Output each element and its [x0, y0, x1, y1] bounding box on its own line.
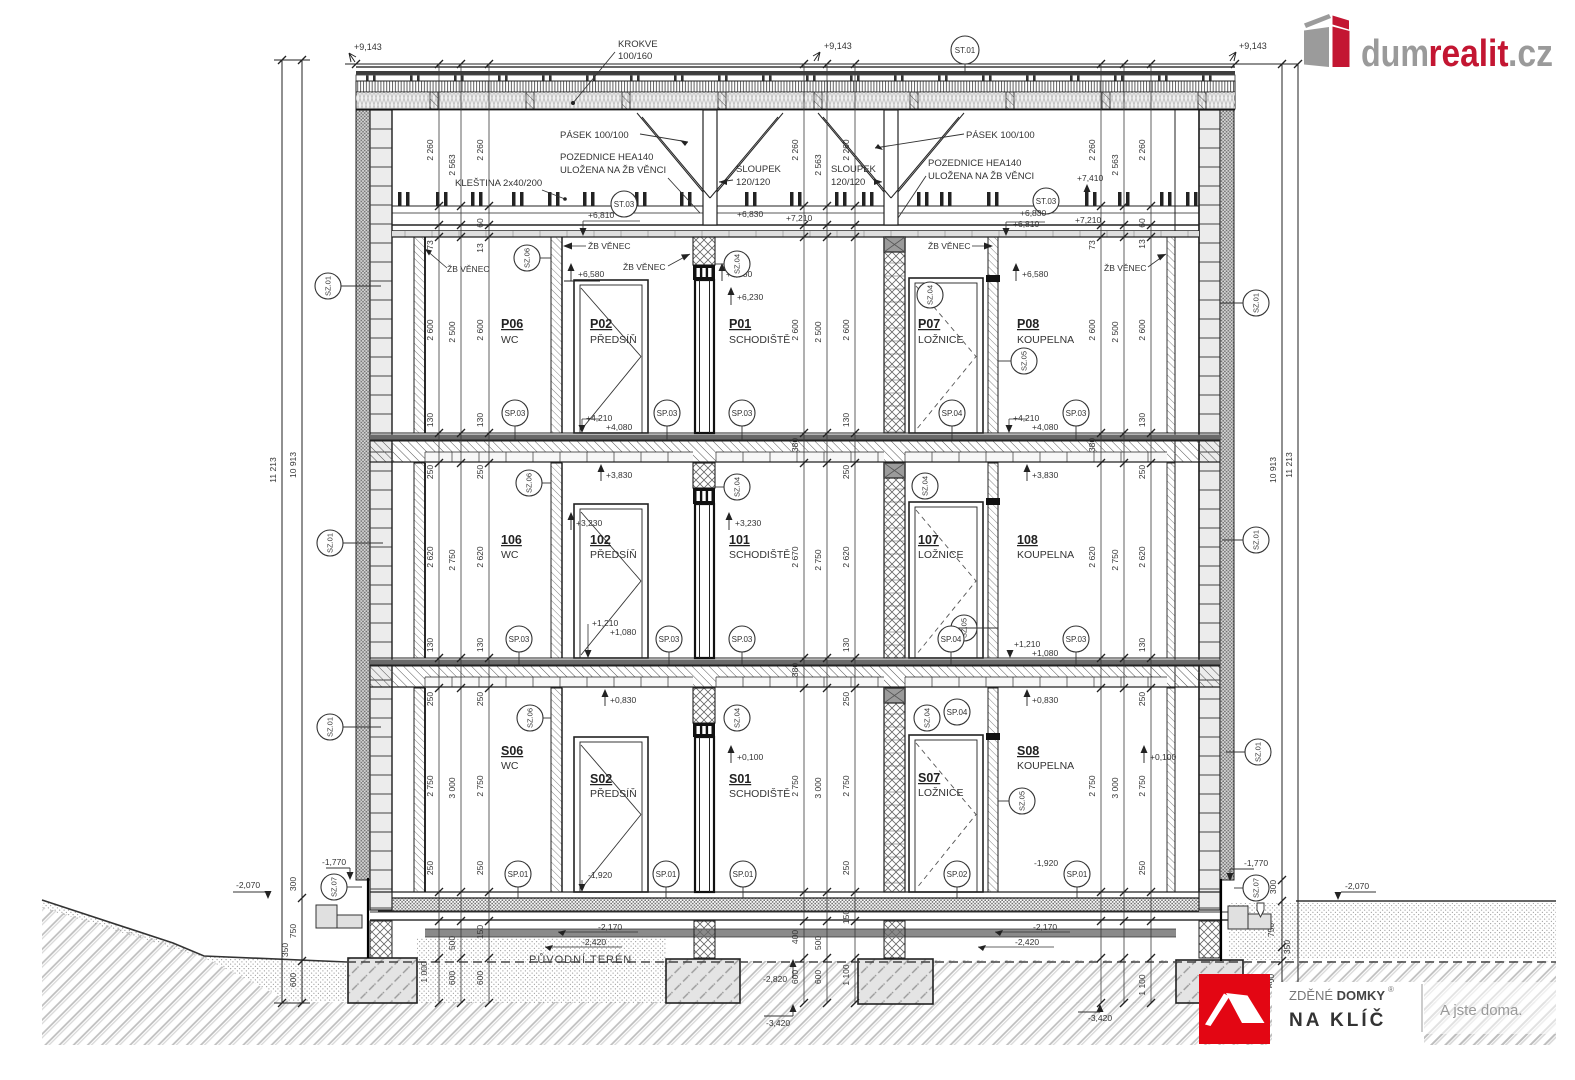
svg-text:+3,230: +3,230	[735, 518, 762, 528]
svg-text:600: 600	[447, 971, 457, 985]
svg-text:ŽB VĚNEC: ŽB VĚNEC	[447, 264, 490, 274]
svg-text:A jste doma.: A jste doma.	[1440, 1002, 1523, 1019]
svg-text:+7,210: +7,210	[786, 213, 813, 223]
svg-text:150: 150	[475, 925, 485, 939]
svg-text:+6,580: +6,580	[1022, 269, 1049, 279]
svg-text:LOŽNICE: LOŽNICE	[918, 548, 964, 561]
svg-text:2 600: 2 600	[1087, 319, 1097, 341]
svg-text:3 000: 3 000	[1110, 777, 1120, 799]
svg-text:600: 600	[288, 973, 298, 987]
svg-text:-2,820: -2,820	[763, 974, 787, 984]
svg-text:60: 60	[1137, 218, 1147, 228]
svg-text:250: 250	[841, 861, 851, 875]
svg-text:100/160: 100/160	[618, 51, 652, 62]
svg-text:P08: P08	[1017, 317, 1039, 331]
svg-text:SZ.01: SZ.01	[1252, 530, 1261, 550]
svg-text:SLOUPEK: SLOUPEK	[736, 164, 782, 175]
svg-text:dum: dum	[1361, 33, 1429, 75]
svg-text:KOUPELNA: KOUPELNA	[1017, 760, 1074, 772]
svg-text:380: 380	[1087, 438, 1097, 452]
svg-text:130: 130	[841, 638, 851, 652]
svg-text:2 670: 2 670	[790, 546, 800, 568]
svg-text:2 750: 2 750	[1110, 549, 1120, 571]
svg-text:2 563: 2 563	[1110, 154, 1120, 176]
svg-text:350: 350	[1282, 940, 1292, 954]
svg-text:SZ.01: SZ.01	[1254, 742, 1263, 762]
svg-text:350: 350	[280, 943, 290, 957]
svg-text:ULOŽENA NA ŽB VĚNCI: ULOŽENA NA ŽB VĚNCI	[560, 165, 666, 176]
svg-text:2 750: 2 750	[790, 775, 800, 797]
svg-text:ZDĚNÉ DOMKY: ZDĚNÉ DOMKY	[1289, 988, 1385, 1003]
svg-text:+6,230: +6,230	[737, 292, 764, 302]
svg-text:.cz: .cz	[1508, 33, 1553, 75]
svg-text:P01: P01	[729, 317, 751, 331]
svg-text:101: 101	[729, 533, 750, 547]
svg-text:2 750: 2 750	[1087, 775, 1097, 797]
svg-text:-2,070: -2,070	[1345, 881, 1369, 891]
svg-text:KLEŠTINA 2x40/200: KLEŠTINA 2x40/200	[455, 178, 542, 189]
svg-text:130: 130	[425, 413, 435, 427]
svg-text:ST.03: ST.03	[614, 200, 635, 209]
svg-text:SZ.04: SZ.04	[733, 708, 742, 728]
svg-text:2 600: 2 600	[475, 319, 485, 341]
svg-text:P02: P02	[590, 317, 612, 331]
svg-text:PŮVODNÍ TERÉN: PŮVODNÍ TERÉN	[529, 953, 632, 966]
svg-text:2 600: 2 600	[425, 319, 435, 341]
svg-text:2 260: 2 260	[841, 139, 851, 161]
svg-text:108: 108	[1017, 533, 1038, 547]
svg-text:130: 130	[841, 413, 851, 427]
svg-text:ŽB VĚNEC: ŽB VĚNEC	[588, 241, 631, 251]
svg-text:realit: realit	[1429, 33, 1509, 75]
svg-text:-1,920: -1,920	[588, 870, 612, 880]
svg-text:107: 107	[918, 533, 939, 547]
svg-text:SP.01: SP.01	[1067, 870, 1088, 879]
svg-text:SZ.06: SZ.06	[523, 248, 532, 268]
svg-text:2 620: 2 620	[1137, 546, 1147, 568]
svg-text:250: 250	[475, 465, 485, 479]
svg-text:PÁSEK 100/100: PÁSEK 100/100	[966, 130, 1035, 141]
svg-text:250: 250	[841, 465, 851, 479]
svg-text:SP.03: SP.03	[657, 409, 678, 418]
svg-text:130: 130	[1137, 638, 1147, 652]
svg-text:-2,170: -2,170	[598, 922, 622, 932]
svg-text:2 600: 2 600	[841, 319, 851, 341]
svg-text:+6,810: +6,810	[1013, 219, 1040, 229]
svg-text:WC: WC	[501, 549, 519, 561]
svg-text:-2,070: -2,070	[236, 880, 260, 890]
svg-text:SP.03: SP.03	[1066, 409, 1087, 418]
svg-text:-1,770: -1,770	[322, 857, 346, 867]
svg-text:600: 600	[475, 971, 485, 985]
svg-text:SZ.07: SZ.07	[1252, 878, 1261, 898]
svg-text:2 260: 2 260	[475, 139, 485, 161]
svg-text:ŽB VĚNEC: ŽB VĚNEC	[1104, 263, 1147, 273]
svg-text:1 000: 1 000	[419, 961, 429, 983]
svg-text:250: 250	[425, 861, 435, 875]
svg-text:+0,100: +0,100	[1150, 752, 1177, 762]
svg-text:-2,420: -2,420	[1015, 937, 1039, 947]
svg-text:600: 600	[813, 970, 823, 984]
svg-text:-1,920: -1,920	[1034, 858, 1058, 868]
svg-text:250: 250	[475, 861, 485, 875]
svg-text:+3,830: +3,830	[1032, 470, 1059, 480]
svg-text:-2,170: -2,170	[1033, 922, 1057, 932]
svg-text:SP.01: SP.01	[733, 870, 754, 879]
svg-text:SP.03: SP.03	[1066, 635, 1087, 644]
svg-text:SP.01: SP.01	[656, 870, 677, 879]
svg-text:73: 73	[1087, 240, 1097, 250]
svg-text:SP.04: SP.04	[941, 635, 962, 644]
svg-text:+6,830: +6,830	[737, 209, 764, 219]
svg-text:2 620: 2 620	[841, 546, 851, 568]
svg-text:SP.03: SP.03	[509, 635, 530, 644]
svg-text:ŽB VĚNEC: ŽB VĚNEC	[928, 241, 971, 251]
svg-text:SZ.04: SZ.04	[733, 477, 742, 497]
svg-text:3 000: 3 000	[813, 777, 823, 799]
svg-text:73: 73	[425, 240, 435, 250]
svg-text:+6,830: +6,830	[1020, 208, 1047, 218]
svg-text:SZ.01: SZ.01	[324, 276, 333, 296]
svg-text:PÁSEK 100/100: PÁSEK 100/100	[560, 130, 629, 141]
svg-text:S07: S07	[918, 771, 940, 785]
svg-text:+7,210: +7,210	[1075, 215, 1102, 225]
svg-text:ŽB VĚNEC: ŽB VĚNEC	[623, 262, 666, 272]
svg-text:2 260: 2 260	[1137, 139, 1147, 161]
svg-text:10 913: 10 913	[1268, 457, 1278, 483]
svg-text:250: 250	[841, 692, 851, 706]
svg-text:ULOŽENA NA ŽB VĚNCI: ULOŽENA NA ŽB VĚNCI	[928, 171, 1034, 182]
svg-text:130: 130	[475, 638, 485, 652]
svg-text:13: 13	[475, 243, 485, 253]
svg-text:600: 600	[790, 970, 800, 984]
svg-text:+4,080: +4,080	[606, 422, 633, 432]
svg-text:2 500: 2 500	[813, 321, 823, 343]
svg-text:2 600: 2 600	[790, 319, 800, 341]
svg-text:PŘEDSÍŇ: PŘEDSÍŇ	[590, 333, 637, 346]
svg-text:130: 130	[475, 413, 485, 427]
svg-text:P07: P07	[918, 317, 940, 331]
svg-text:120/120: 120/120	[736, 177, 770, 188]
svg-text:2 750: 2 750	[475, 775, 485, 797]
svg-text:SP.03: SP.03	[659, 635, 680, 644]
svg-text:2 620: 2 620	[475, 546, 485, 568]
svg-text:250: 250	[425, 465, 435, 479]
svg-text:2 260: 2 260	[1087, 139, 1097, 161]
svg-text:+3,230: +3,230	[576, 518, 603, 528]
svg-text:SZ.04: SZ.04	[923, 708, 932, 728]
svg-text:SZ.04: SZ.04	[921, 476, 930, 496]
svg-text:2 750: 2 750	[425, 775, 435, 797]
svg-text:250: 250	[1137, 692, 1147, 706]
svg-text:500: 500	[813, 936, 823, 950]
svg-text:SZ.01: SZ.01	[326, 533, 335, 553]
svg-text:ST.01: ST.01	[955, 46, 976, 55]
svg-text:+9,143: +9,143	[1239, 41, 1267, 51]
svg-text:2 563: 2 563	[447, 154, 457, 176]
svg-text:2 500: 2 500	[1110, 321, 1120, 343]
svg-text:250: 250	[475, 692, 485, 706]
svg-text:2 750: 2 750	[447, 549, 457, 571]
svg-text:SZ.01: SZ.01	[1252, 293, 1261, 313]
svg-text:SP.02: SP.02	[947, 870, 968, 879]
svg-text:SCHODIŠTĚ: SCHODIŠTĚ	[729, 548, 790, 561]
svg-text:+0,830: +0,830	[610, 695, 637, 705]
svg-text:380: 380	[790, 438, 800, 452]
svg-text:250: 250	[1137, 465, 1147, 479]
svg-text:-3,420: -3,420	[1088, 1013, 1112, 1023]
svg-text:120/120: 120/120	[831, 177, 865, 188]
svg-text:102: 102	[590, 533, 611, 547]
svg-text:ST.03: ST.03	[1036, 197, 1057, 206]
svg-text:60: 60	[475, 218, 485, 228]
svg-text:KOUPELNA: KOUPELNA	[1017, 549, 1074, 561]
svg-text:2 500: 2 500	[447, 321, 457, 343]
svg-text:130: 130	[1137, 413, 1147, 427]
svg-text:2 750: 2 750	[1137, 775, 1147, 797]
svg-text:WC: WC	[501, 760, 519, 772]
svg-text:-3,420: -3,420	[766, 1018, 790, 1028]
svg-text:SP.04: SP.04	[942, 409, 963, 418]
svg-text:130: 130	[425, 638, 435, 652]
svg-text:+7,410: +7,410	[1077, 173, 1104, 183]
svg-text:150: 150	[841, 910, 851, 924]
svg-text:KROKVE: KROKVE	[618, 39, 658, 50]
svg-text:LOŽNICE: LOŽNICE	[918, 786, 964, 799]
svg-text:+1,080: +1,080	[610, 627, 637, 637]
svg-text:SP.03: SP.03	[505, 409, 526, 418]
svg-text:-1,770: -1,770	[1244, 858, 1268, 868]
svg-text:S08: S08	[1017, 744, 1039, 758]
svg-text:11 213: 11 213	[1284, 452, 1294, 478]
svg-text:2 620: 2 620	[1087, 546, 1097, 568]
svg-text:250: 250	[425, 692, 435, 706]
svg-text:400: 400	[790, 930, 800, 944]
svg-text:750: 750	[288, 924, 298, 938]
svg-text:2 600: 2 600	[1137, 319, 1147, 341]
svg-text:2 750: 2 750	[841, 775, 851, 797]
svg-text:SP.03: SP.03	[732, 635, 753, 644]
svg-text:11 213: 11 213	[268, 457, 278, 483]
svg-text:LOŽNICE: LOŽNICE	[918, 333, 964, 346]
svg-text:10 913: 10 913	[288, 452, 298, 478]
svg-text:2 620: 2 620	[425, 546, 435, 568]
svg-text:PŘEDSÍŇ: PŘEDSÍŇ	[590, 548, 637, 561]
svg-text:2 260: 2 260	[425, 139, 435, 161]
svg-text:380: 380	[790, 663, 800, 677]
svg-text:+6,810: +6,810	[588, 210, 615, 220]
svg-text:1 100: 1 100	[841, 964, 851, 986]
svg-text:3 000: 3 000	[447, 777, 457, 799]
svg-text:KOUPELNA: KOUPELNA	[1017, 334, 1074, 346]
svg-text:SP.03: SP.03	[732, 409, 753, 418]
svg-text:+0,100: +0,100	[737, 752, 764, 762]
svg-text:2 563: 2 563	[813, 154, 823, 176]
svg-text:WC: WC	[501, 334, 519, 346]
svg-text:SZ.05: SZ.05	[1020, 351, 1029, 371]
svg-text:S02: S02	[590, 772, 612, 786]
svg-text:+6,580: +6,580	[578, 269, 605, 279]
svg-text:SLOUPEK: SLOUPEK	[831, 164, 877, 175]
svg-text:+9,143: +9,143	[824, 41, 852, 51]
svg-text:SP.01: SP.01	[508, 870, 529, 879]
svg-text:SZ.04: SZ.04	[926, 285, 935, 305]
svg-text:SCHODIŠTĚ: SCHODIŠTĚ	[729, 787, 790, 800]
svg-text:SCHODIŠTĚ: SCHODIŠTĚ	[729, 333, 790, 346]
svg-text:+1,080: +1,080	[1032, 648, 1059, 658]
svg-text:-2,420: -2,420	[582, 937, 606, 947]
svg-text:106: 106	[501, 533, 522, 547]
svg-text:NA KLÍČ: NA KLÍČ	[1289, 1009, 1386, 1031]
svg-text:1 100: 1 100	[1137, 974, 1147, 996]
svg-text:SZ.06: SZ.06	[525, 473, 534, 493]
svg-text:500: 500	[447, 936, 457, 950]
svg-text:S06: S06	[501, 744, 523, 758]
svg-text:POZEDNICE HEA140: POZEDNICE HEA140	[560, 152, 653, 163]
svg-text:SZ.06: SZ.06	[526, 708, 535, 728]
svg-text:SZ.05: SZ.05	[1018, 791, 1027, 811]
svg-text:SZ.01: SZ.01	[326, 717, 335, 737]
svg-text:SP.04: SP.04	[947, 708, 968, 717]
svg-text:POZEDNICE HEA140: POZEDNICE HEA140	[928, 158, 1021, 169]
svg-text:PŘEDSÍŇ: PŘEDSÍŇ	[590, 787, 637, 800]
svg-text:SZ.07: SZ.07	[330, 877, 339, 897]
svg-text:+4,080: +4,080	[1032, 422, 1059, 432]
svg-text:+3,830: +3,830	[606, 470, 633, 480]
svg-text:SZ.04: SZ.04	[733, 254, 742, 274]
svg-text:2 260: 2 260	[790, 139, 800, 161]
svg-text:250: 250	[1137, 861, 1147, 875]
svg-text:+0,830: +0,830	[1032, 695, 1059, 705]
svg-text:300: 300	[288, 877, 298, 891]
svg-text:S01: S01	[729, 772, 751, 786]
svg-text:13: 13	[1137, 239, 1147, 249]
svg-text:+9,143: +9,143	[354, 42, 382, 52]
svg-text:2 750: 2 750	[813, 549, 823, 571]
svg-text:P06: P06	[501, 317, 523, 331]
svg-text:®: ®	[1388, 985, 1394, 994]
